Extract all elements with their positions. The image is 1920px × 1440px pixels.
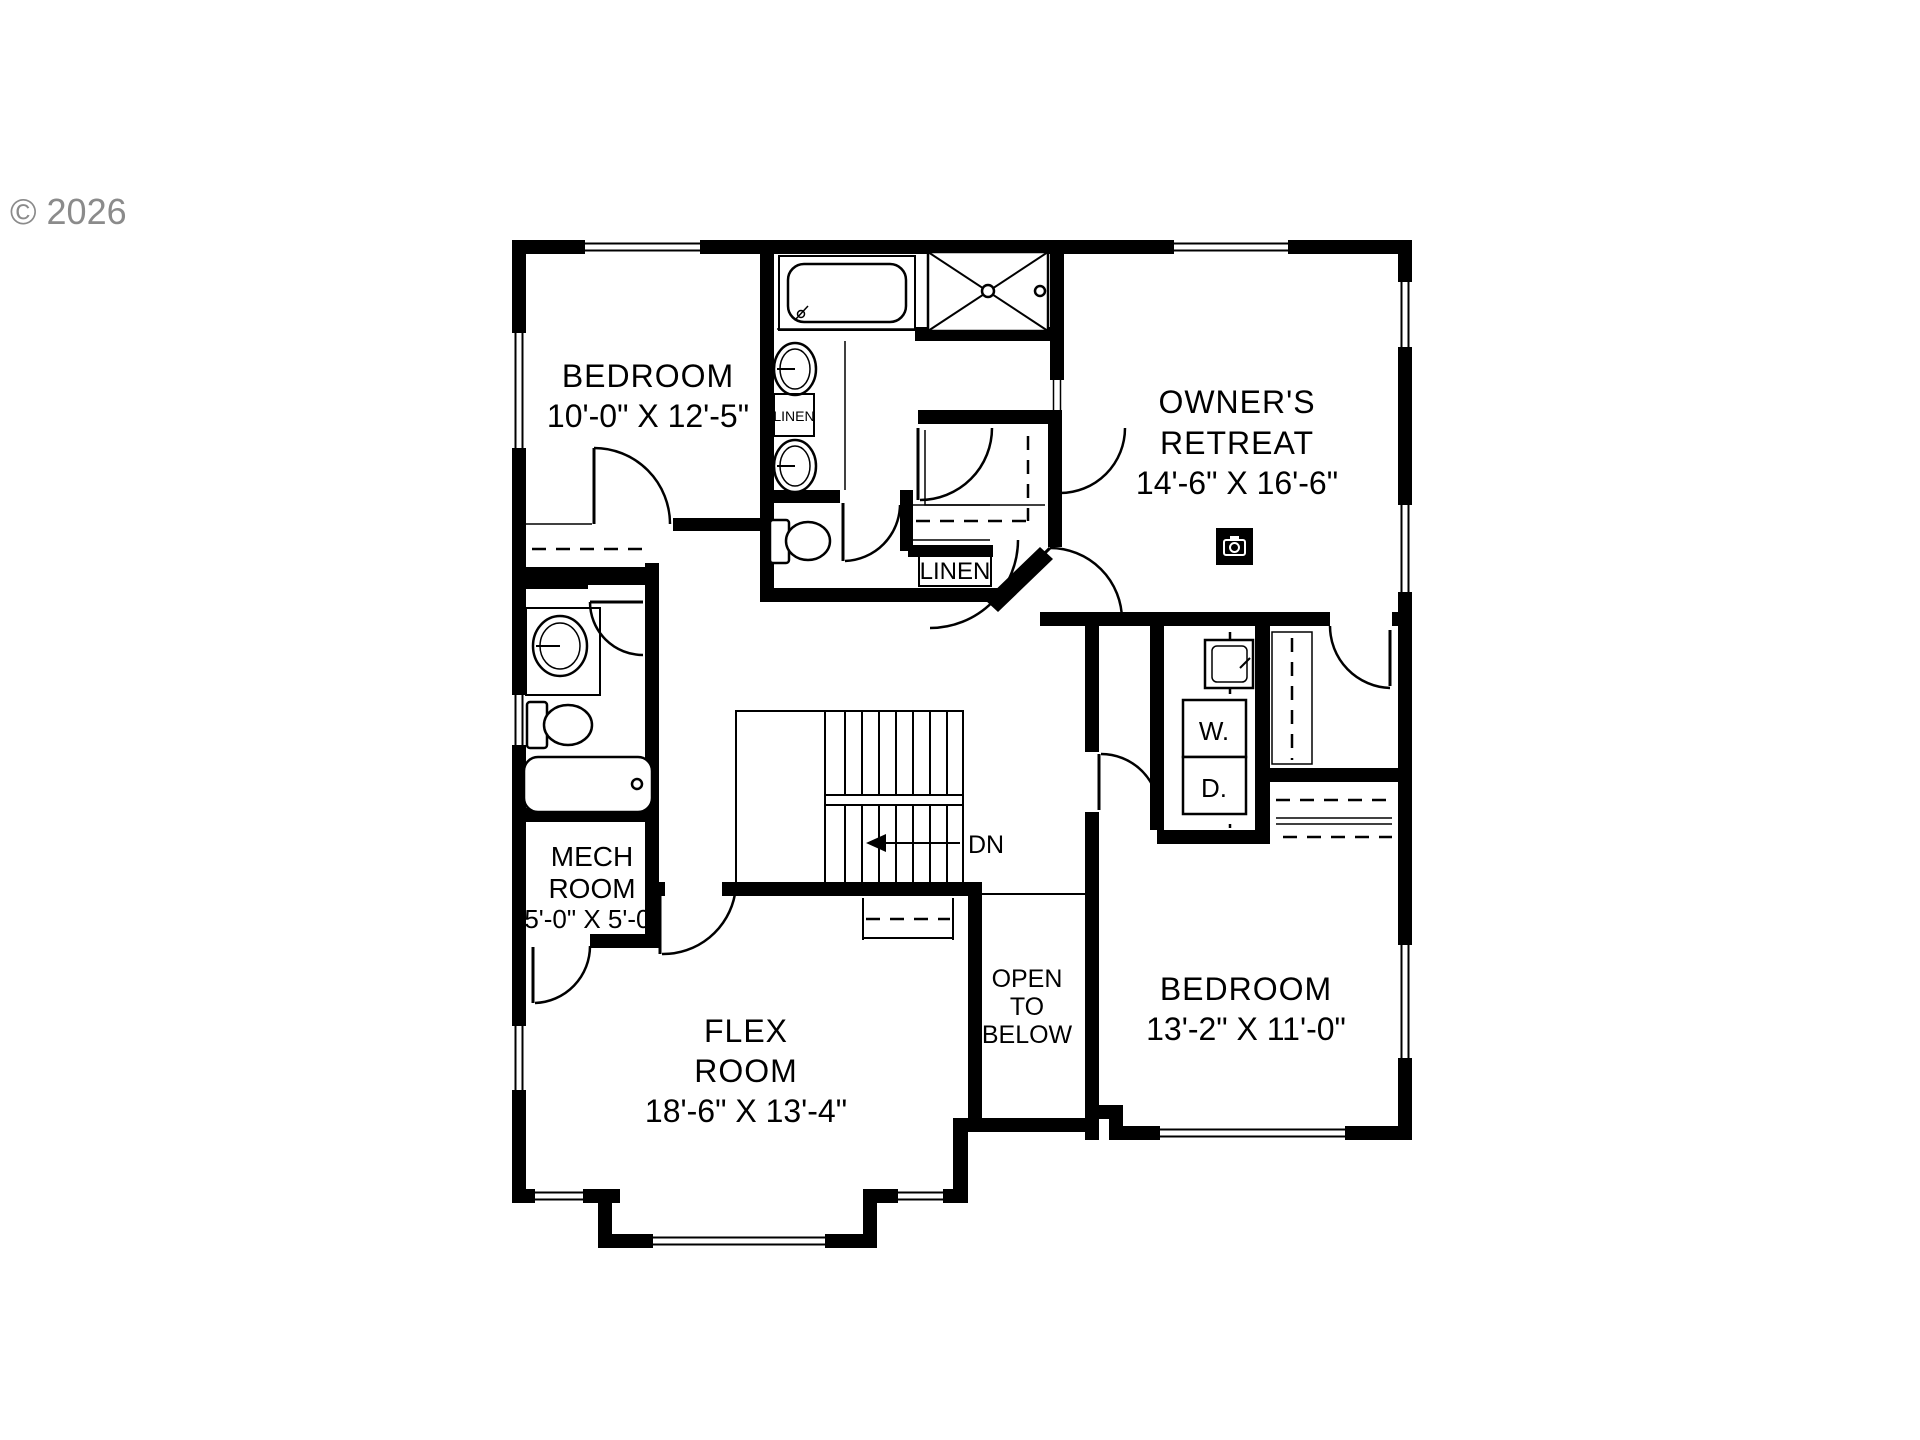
sink <box>774 343 816 395</box>
floor-plan-page: DN <box>0 0 1920 1440</box>
bedroom3-dims: 13'-2" X 11'-0" <box>1146 1011 1346 1047</box>
window <box>1160 1130 1345 1137</box>
hall-bath <box>524 602 652 812</box>
dryer: D. <box>1183 757 1246 814</box>
mech-room: MECH ROOM 5'-0" X 5'-0" <box>524 841 659 1003</box>
stairs-down-label: DN <box>968 831 1004 859</box>
mech-door <box>533 946 590 1003</box>
window <box>898 1193 943 1200</box>
bathtub <box>524 757 652 812</box>
flex-name-1: FLEX <box>704 1013 788 1049</box>
owners-wic <box>1272 626 1390 764</box>
window <box>653 1238 825 1245</box>
bedroom1-door <box>594 448 670 524</box>
owners-dims: 14'-6" X 16'-6" <box>1136 465 1338 501</box>
staircase: DN <box>736 711 1085 940</box>
owners-name-2: RETREAT <box>1160 425 1314 461</box>
wic-door <box>1330 626 1390 688</box>
mech-name-2: ROOM <box>548 873 635 904</box>
toilet <box>770 520 830 563</box>
bedroom1-name: BEDROOM <box>562 358 734 394</box>
flex-room: FLEX ROOM 18'-6" X 13'-4" <box>645 894 847 1129</box>
flex-door <box>660 894 735 954</box>
owners-name-1: OWNER'S <box>1158 384 1315 420</box>
washer: W. <box>1183 700 1246 757</box>
sink <box>774 440 816 492</box>
window <box>516 333 523 448</box>
camera-icon[interactable] <box>1216 528 1253 565</box>
wc-door <box>843 503 900 561</box>
otb-1: OPEN <box>992 965 1063 993</box>
flex-dims: 18'-6" X 13'-4" <box>645 1093 847 1129</box>
window <box>535 1193 583 1200</box>
window <box>1402 505 1409 592</box>
window <box>516 1026 523 1090</box>
stair-treads-upper <box>845 711 947 795</box>
window <box>516 695 523 745</box>
bedroom3-name: BEDROOM <box>1160 971 1332 1007</box>
bedroom3-closet <box>1276 800 1392 837</box>
owners-closet <box>916 380 1125 521</box>
copyright-watermark: © 2026 <box>10 191 127 232</box>
open-to-below: OPEN TO BELOW <box>982 965 1073 1049</box>
shower <box>928 252 1048 331</box>
closet-door <box>918 428 992 500</box>
otb-3: BELOW <box>982 1021 1073 1049</box>
bedroom1-dims: 10'-0" X 12'-5" <box>547 398 749 434</box>
linen-closet-bath: LINEN <box>773 394 814 436</box>
mech-name-1: MECH <box>551 841 633 872</box>
bedroom1-closet <box>526 524 648 549</box>
window <box>1174 244 1288 251</box>
otb-2: TO <box>1010 993 1044 1021</box>
owners-retreat: OWNER'S RETREAT 14'-6" X 16'-6" <box>1136 384 1338 565</box>
laundry: W. D. <box>1183 632 1253 828</box>
mech-dims: 5'-0" X 5'-0" <box>524 904 659 934</box>
laundry-sink <box>1205 640 1253 688</box>
toilet <box>527 702 592 748</box>
linen-hall-label: LINEN <box>920 558 991 585</box>
flex-name-2: ROOM <box>694 1053 798 1089</box>
washer-label: W. <box>1199 716 1229 746</box>
bath2-door <box>590 602 643 655</box>
bathtub <box>779 256 915 330</box>
window <box>585 244 700 251</box>
floor-plan-drawing: DN <box>0 0 1920 1440</box>
linen-closet-hall: LINEN <box>919 555 991 586</box>
window <box>1402 945 1409 1058</box>
owners-bath-door-arc <box>1060 428 1125 493</box>
stair-treads-lower <box>845 805 947 884</box>
window <box>1402 282 1409 347</box>
linen-bath-label: LINEN <box>773 408 814 424</box>
dryer-label: D. <box>1201 773 1227 803</box>
sink <box>533 616 587 676</box>
